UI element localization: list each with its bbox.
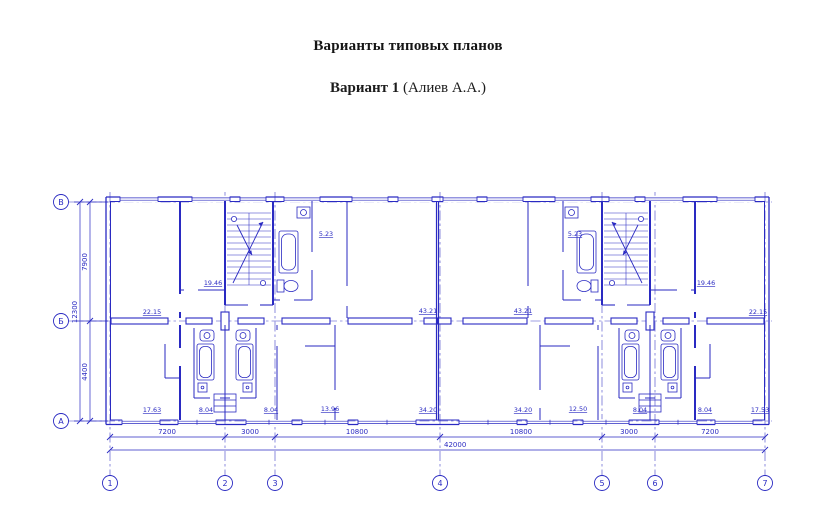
room-area-label: 8.04 xyxy=(264,406,278,414)
axis-number: 7 xyxy=(762,479,767,488)
dim-segment: 3000 xyxy=(241,428,259,436)
vent-shaft-icon xyxy=(214,394,236,412)
dim-segment: 7200 xyxy=(158,428,176,436)
partition-walls-upper xyxy=(180,201,347,318)
sink-icon xyxy=(236,330,250,341)
bathroom-fixtures-upper xyxy=(277,207,310,292)
axis-number: 4 xyxy=(437,479,442,488)
axis-letter: Б xyxy=(58,317,64,326)
dim-vertical-top: 7900 xyxy=(81,253,89,271)
room-area-label: 17.63 xyxy=(143,406,161,414)
axis-number: 5 xyxy=(599,479,604,488)
room-area-label: 43.21 xyxy=(514,307,532,315)
room-area-label: 22.15 xyxy=(143,308,161,316)
axis-markers xyxy=(54,195,773,491)
toilet-icon xyxy=(277,280,298,292)
dim-vertical-bottom: 4400 xyxy=(81,363,89,381)
sink-icon xyxy=(297,207,310,218)
dim-segment: 7200 xyxy=(701,428,719,436)
room-area-label: 5.23 xyxy=(319,230,333,238)
staircase xyxy=(225,201,273,305)
toilet-icon xyxy=(243,383,252,392)
axis-number: 6 xyxy=(652,479,657,488)
room-area-label: 22.15 xyxy=(749,308,767,316)
room-area-label: 12.50 xyxy=(569,405,587,413)
floor-plan-drawing: В Б А 1 2 3 4 5 6 7 7900 4400 12300 7200… xyxy=(0,0,816,523)
dim-vertical-total: 12300 xyxy=(71,301,79,323)
dim-segment: 3000 xyxy=(620,428,638,436)
dimension-lines xyxy=(74,199,768,453)
axis-letter: А xyxy=(58,417,64,426)
document-page: Варианты типовых планов Вариант 1 (Алиев… xyxy=(0,0,816,523)
axis-number: 1 xyxy=(107,479,112,488)
axis-letter: В xyxy=(58,198,64,207)
room-area-label: 8.04 xyxy=(633,406,647,414)
room-area-label: 13.96 xyxy=(321,405,339,413)
room-area-label: 19.46 xyxy=(697,279,715,287)
room-area-label: 8.04 xyxy=(199,406,213,414)
room-area-label: 34.20 xyxy=(514,406,532,414)
room-area-label: 43.21 xyxy=(419,307,437,315)
room-area-label: 17.53 xyxy=(751,406,769,414)
room-area-label: 5.23 xyxy=(568,230,582,238)
sink-icon xyxy=(200,330,214,341)
dim-segment: 10800 xyxy=(346,428,368,436)
axis-number: 3 xyxy=(272,479,277,488)
stair-newel-icon xyxy=(231,216,236,221)
dim-total: 42000 xyxy=(444,441,466,449)
dim-segment: 10800 xyxy=(510,428,532,436)
room-area-label: 19.46 xyxy=(204,279,222,287)
building-right-half xyxy=(438,196,770,426)
stair-newel-icon xyxy=(260,280,265,285)
axis-number: 2 xyxy=(222,479,227,488)
room-area-label: 8.04 xyxy=(698,406,712,414)
toilet-icon xyxy=(198,383,207,392)
room-area-label: 34.20 xyxy=(419,406,437,414)
